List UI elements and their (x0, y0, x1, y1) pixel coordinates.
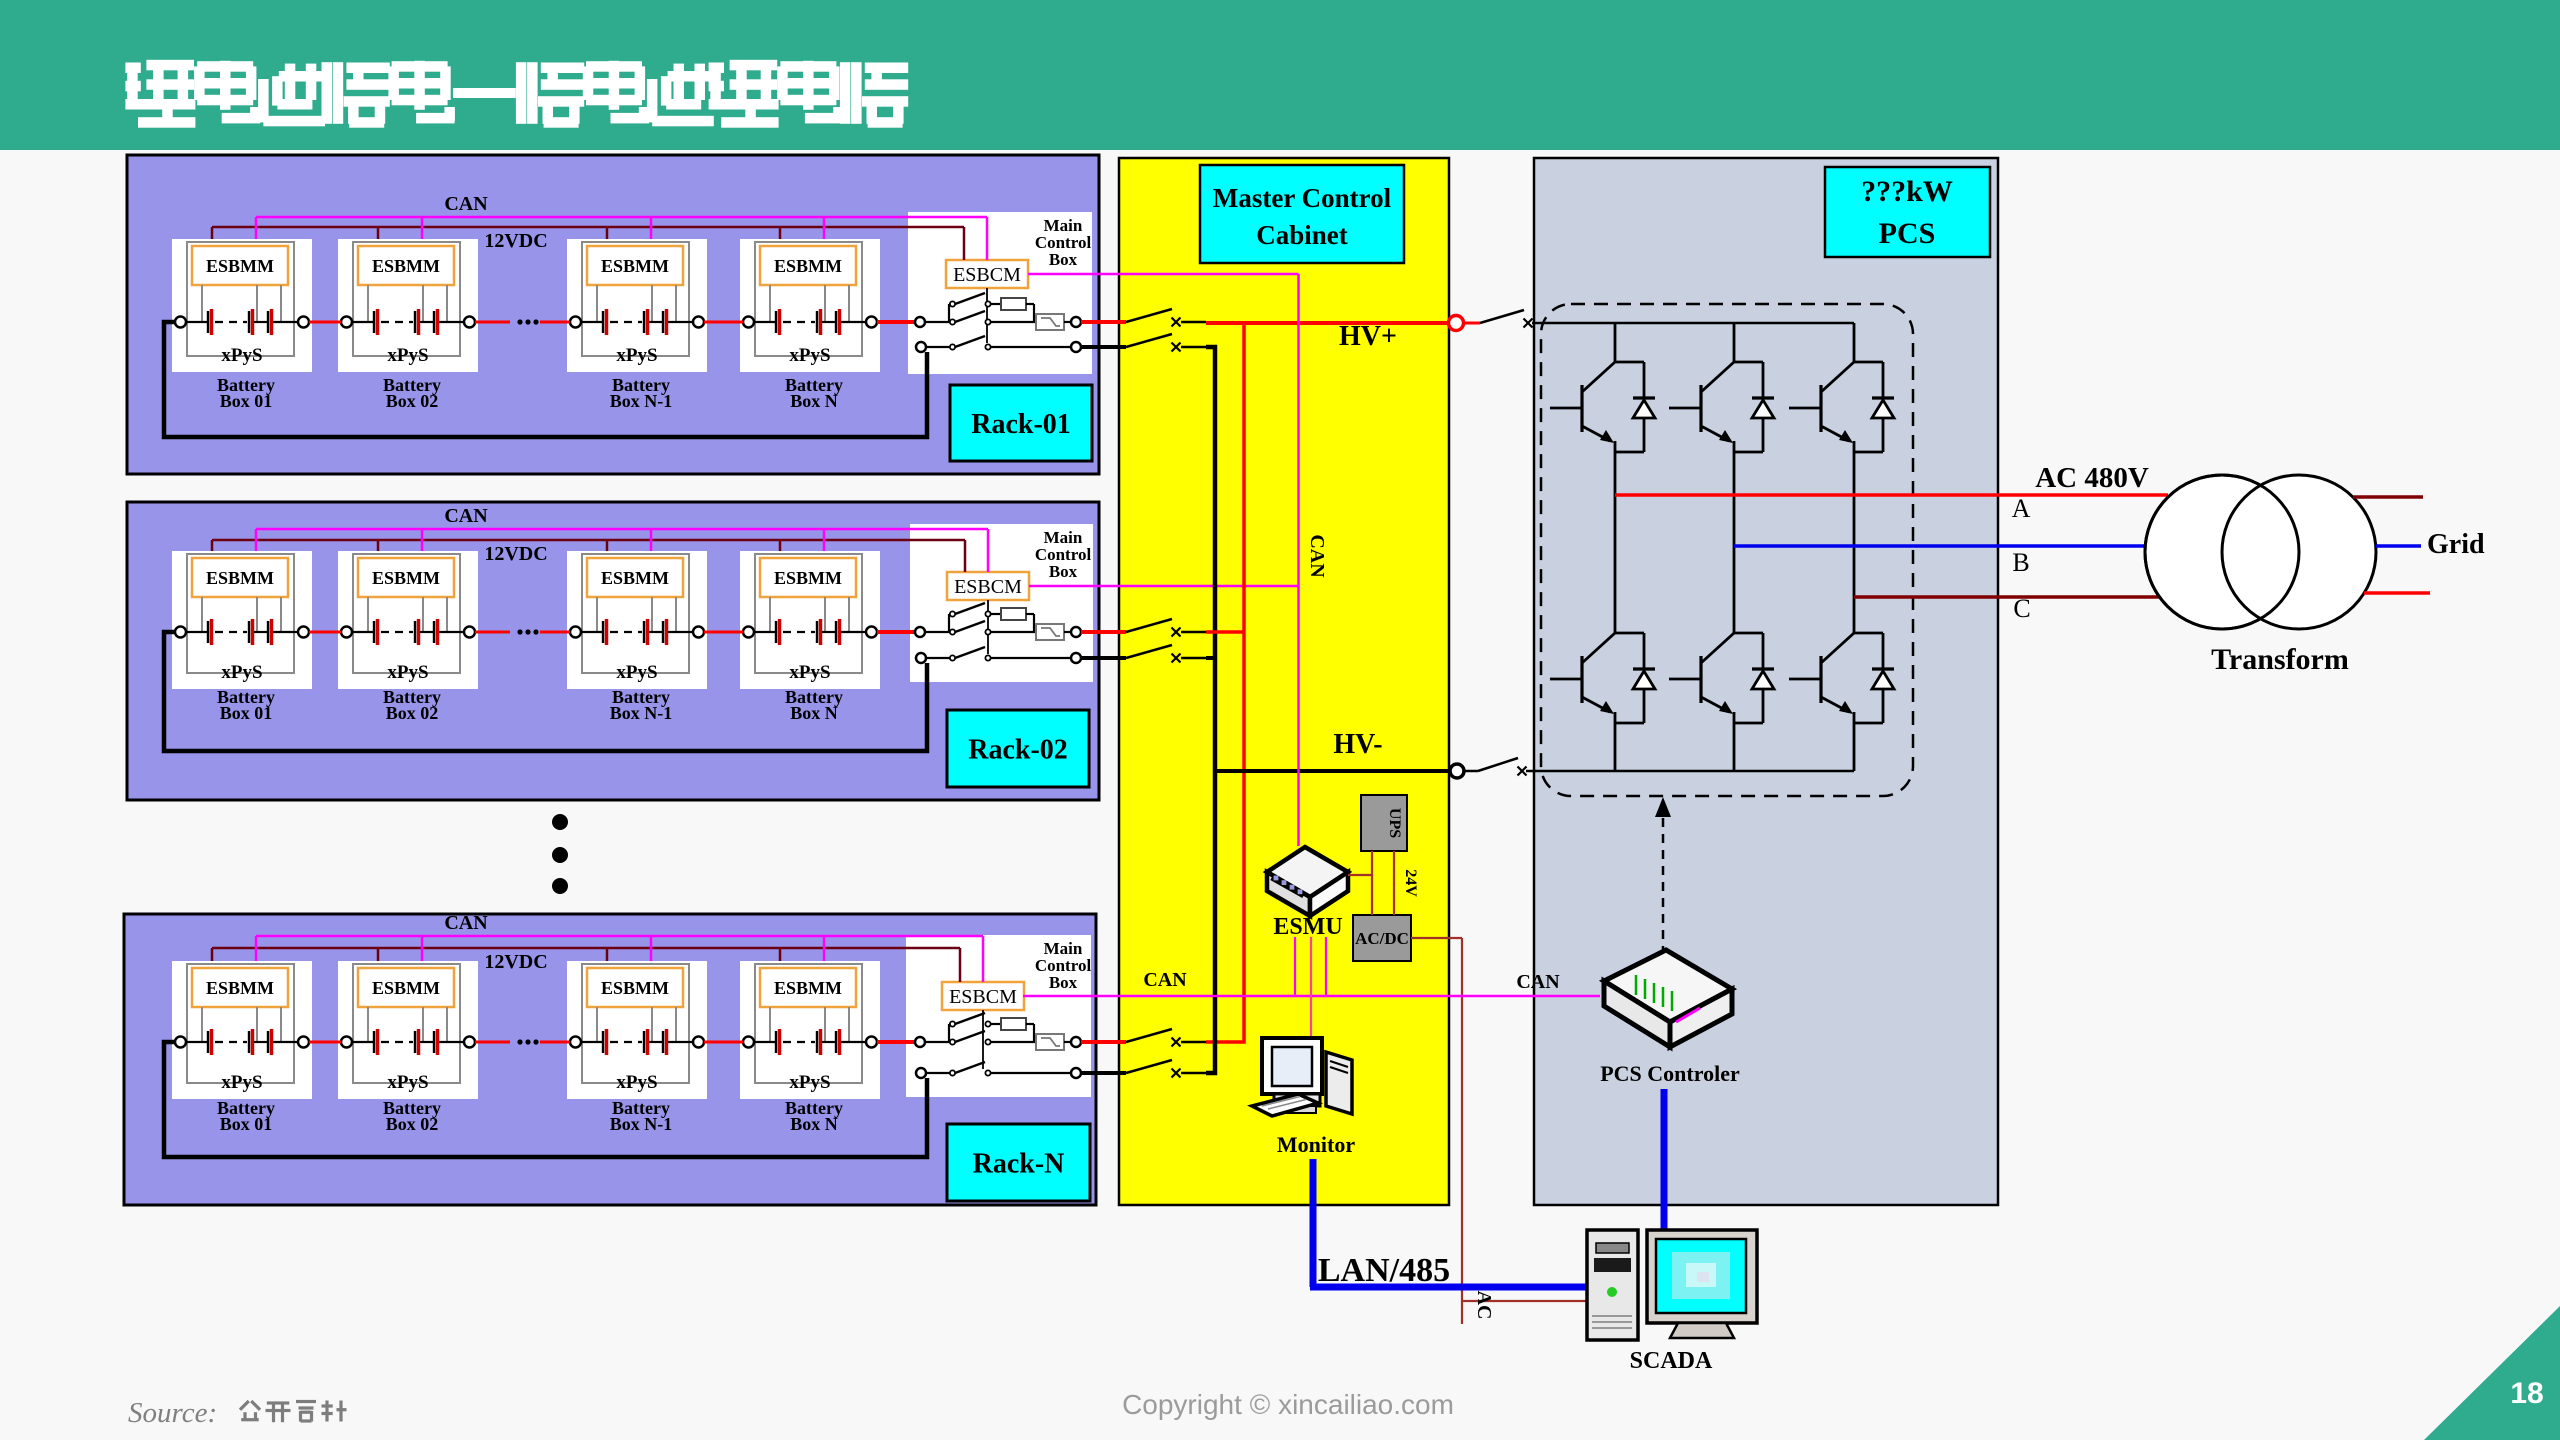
svg-text:ESBMM: ESBMM (601, 256, 669, 276)
svg-text:CAN: CAN (1143, 969, 1187, 991)
svg-text:Box 01: Box 01 (220, 703, 273, 723)
svg-text:xPyS: xPyS (616, 345, 657, 366)
svg-text:ESBMM: ESBMM (206, 978, 274, 998)
svg-text:CAN: CAN (444, 912, 488, 934)
svg-text:ESBMM: ESBMM (774, 568, 842, 588)
svg-text:ESBMM: ESBMM (601, 568, 669, 588)
svg-text:Rack-N: Rack-N (973, 1149, 1065, 1180)
svg-text:ESBMM: ESBMM (372, 978, 440, 998)
svg-text:AC 480V: AC 480V (2035, 462, 2149, 494)
svg-text:Grid: Grid (2427, 529, 2485, 560)
svg-text:Box N: Box N (790, 391, 838, 411)
svg-text:xPyS: xPyS (387, 662, 428, 683)
svg-text:ESBCM: ESBCM (949, 986, 1017, 1008)
svg-text:CAN: CAN (444, 193, 488, 215)
svg-text:PCS Controler: PCS Controler (1600, 1061, 1740, 1086)
svg-text:Cabinet: Cabinet (1256, 220, 1348, 250)
svg-text:ESBMM: ESBMM (372, 568, 440, 588)
svg-text:Box: Box (1049, 562, 1078, 581)
svg-text:SCADA: SCADA (1630, 1348, 1713, 1374)
svg-text:HV+: HV+ (1339, 321, 1397, 352)
svg-text:xPyS: xPyS (616, 1072, 657, 1093)
svg-text:A: A (2012, 494, 2031, 523)
svg-text:Box 01: Box 01 (220, 391, 273, 411)
svg-text:Box 02: Box 02 (386, 703, 439, 723)
svg-text:Box N-1: Box N-1 (610, 391, 673, 411)
svg-text:Rack-01: Rack-01 (971, 409, 1071, 440)
svg-text:xPyS: xPyS (221, 1072, 262, 1093)
svg-text:ESBCM: ESBCM (954, 576, 1022, 598)
svg-text:LAN/485: LAN/485 (1318, 1252, 1450, 1289)
svg-text:HV-: HV- (1333, 729, 1382, 760)
svg-text:AC: AC (1473, 1291, 1495, 1320)
svg-text:ESMU: ESMU (1273, 914, 1342, 940)
svg-text:Box 02: Box 02 (386, 391, 439, 411)
svg-text:Box N: Box N (790, 703, 838, 723)
svg-text:24V: 24V (1402, 869, 1419, 897)
svg-text:Box N-1: Box N-1 (610, 703, 673, 723)
svg-text:Box: Box (1049, 250, 1078, 269)
svg-text:xPyS: xPyS (387, 1072, 428, 1093)
svg-text:ESBMM: ESBMM (206, 568, 274, 588)
svg-text:xPyS: xPyS (221, 662, 262, 683)
svg-text:B: B (2012, 548, 2029, 577)
svg-text:18: 18 (2510, 1377, 2543, 1410)
svg-text:xPyS: xPyS (387, 345, 428, 366)
svg-text:ESBCM: ESBCM (953, 264, 1021, 286)
svg-text:xPyS: xPyS (221, 345, 262, 366)
svg-text:Box 01: Box 01 (220, 1114, 273, 1134)
svg-text:Box: Box (1049, 973, 1078, 992)
svg-text:ESBMM: ESBMM (372, 256, 440, 276)
svg-text:12VDC: 12VDC (484, 543, 547, 565)
svg-text:CAN: CAN (1306, 534, 1328, 578)
svg-text:Transform: Transform (2211, 643, 2349, 676)
svg-text:Box N-1: Box N-1 (610, 1114, 673, 1134)
svg-text:ESBMM: ESBMM (774, 256, 842, 276)
svg-text:Box N: Box N (790, 1114, 838, 1134)
svg-text:PCS: PCS (1879, 217, 1936, 250)
svg-text:UPS: UPS (1386, 808, 1403, 838)
svg-text:Rack-02: Rack-02 (968, 735, 1068, 766)
svg-text:ESBMM: ESBMM (206, 256, 274, 276)
svg-text:???kW: ???kW (1861, 175, 1953, 208)
svg-text:Source:: Source: (128, 1397, 217, 1429)
svg-text:xPyS: xPyS (616, 662, 657, 683)
svg-text:Master Control: Master Control (1213, 183, 1392, 213)
svg-text:ESBMM: ESBMM (601, 978, 669, 998)
svg-text:CAN: CAN (444, 505, 488, 527)
svg-text:12VDC: 12VDC (484, 951, 547, 973)
svg-text:Box 02: Box 02 (386, 1114, 439, 1134)
svg-text:Monitor: Monitor (1277, 1132, 1355, 1157)
svg-text:12VDC: 12VDC (484, 230, 547, 252)
svg-text:xPyS: xPyS (789, 1072, 830, 1093)
svg-text:CAN: CAN (1516, 971, 1560, 993)
svg-text:C: C (2013, 594, 2030, 623)
svg-text:Copyright © xincailiao.com: Copyright © xincailiao.com (1122, 1389, 1454, 1420)
svg-text:ESBMM: ESBMM (774, 978, 842, 998)
svg-text:xPyS: xPyS (789, 345, 830, 366)
svg-text:AC/DC: AC/DC (1355, 929, 1409, 948)
svg-text:xPyS: xPyS (789, 662, 830, 683)
